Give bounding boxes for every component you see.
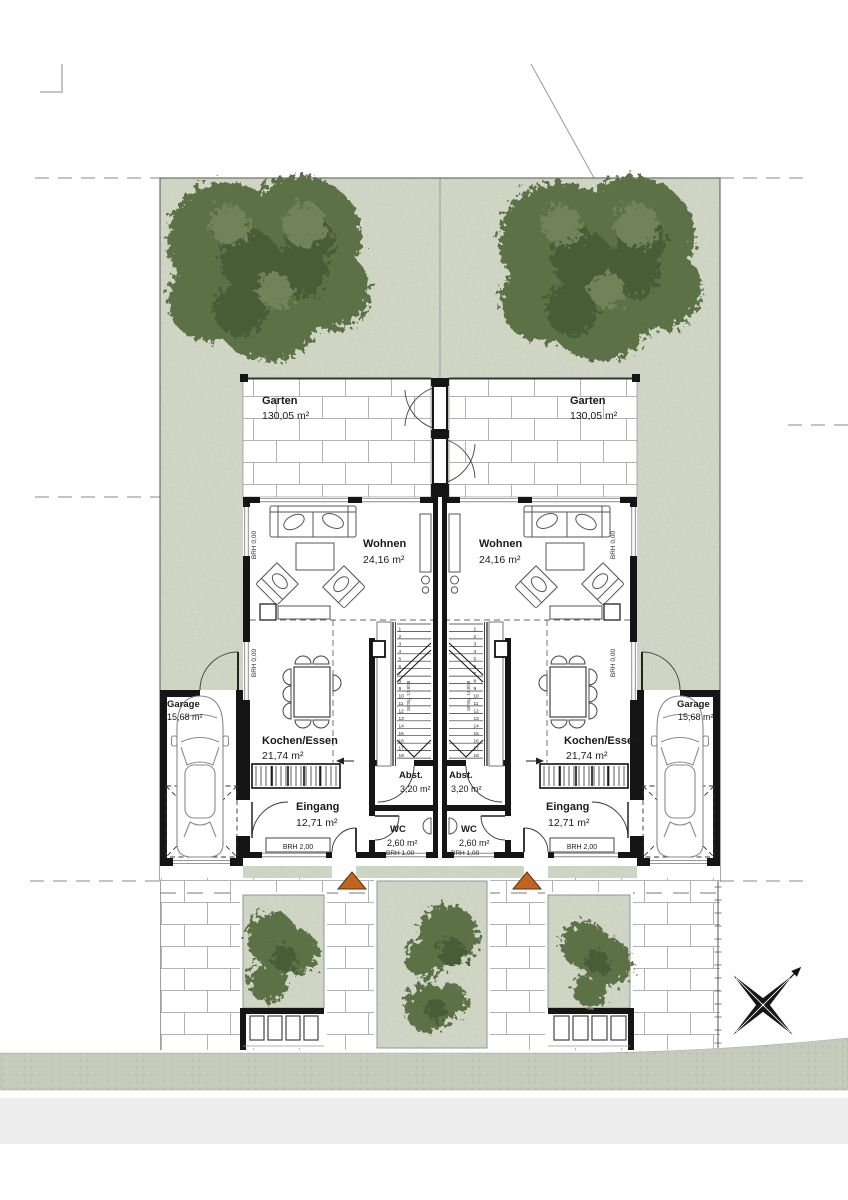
room-label-wc-right: WC bbox=[461, 824, 477, 835]
stair-step-number: 6 bbox=[474, 664, 477, 670]
stair-step-number: 8 bbox=[474, 679, 477, 685]
room-area-wc-left: 2,60 m² bbox=[387, 838, 418, 848]
brh-wc-window-right: BRH 1,00 bbox=[451, 850, 480, 857]
stair-step-number: 13 bbox=[474, 716, 480, 722]
road bbox=[0, 1098, 848, 1144]
room-label-wc-left: WC bbox=[390, 824, 406, 835]
brh-front-window-left: BRH 2,00 bbox=[283, 844, 313, 851]
room-label-eingang-left: Eingang bbox=[296, 801, 339, 813]
stair-step-number: 5 bbox=[399, 656, 402, 662]
stair-step-number: 10 bbox=[474, 694, 480, 700]
stair-step-number: 11 bbox=[399, 701, 404, 707]
room-area-eingang-right: 12,71 m² bbox=[548, 817, 590, 829]
stair-step-number: 15 bbox=[399, 731, 405, 737]
garden-right-label: Garten bbox=[570, 395, 606, 407]
room-label-garage-left: Garage bbox=[167, 699, 200, 710]
room-label-abst-left: Abst. bbox=[399, 770, 423, 781]
room-area-eingang-left: 12,71 m² bbox=[296, 817, 338, 829]
stair-step-number: 18 bbox=[474, 753, 480, 759]
room-area-wc-right: 2,60 m² bbox=[459, 838, 490, 848]
room-label-abst-right: Abst. bbox=[449, 770, 473, 781]
corner-mark bbox=[40, 64, 62, 92]
stair-step-number: 7 bbox=[399, 671, 402, 677]
room-area-wohnen-right: 24,16 m² bbox=[479, 554, 521, 566]
stair-step-number: 1 bbox=[474, 627, 477, 633]
stair-step-number: 4 bbox=[474, 649, 477, 655]
brh-window-right-kitchen: BRH 0,00 bbox=[610, 649, 617, 678]
stair-step-number: 3 bbox=[399, 641, 402, 647]
room-area-kochen-right: 21,74 m² bbox=[566, 750, 608, 762]
floor-plan-page: Garten 130,05 m² Garten 130,05 m² Wohnen… bbox=[0, 0, 848, 1200]
brh-window-right-living: BRH 0,00 bbox=[610, 531, 617, 560]
stair-note-left: 18 Stg. 17,8/28 bbox=[406, 680, 411, 711]
stair-step-number: 13 bbox=[399, 716, 405, 722]
brh-wc-window-left: BRH 1,00 bbox=[386, 850, 415, 857]
boundary-diagonal-line bbox=[531, 64, 594, 178]
front-lawn-strip-texture bbox=[243, 866, 637, 878]
room-area-abst-right: 3,20 m² bbox=[451, 784, 482, 794]
stair-step-number: 2 bbox=[399, 634, 402, 640]
stair-step-number: 14 bbox=[399, 723, 405, 729]
stair-step-number: 16 bbox=[399, 738, 405, 744]
brh-front-window-right: BRH 2,00 bbox=[567, 844, 597, 851]
stair-step-number: 12 bbox=[399, 708, 405, 714]
stair-step-number: 2 bbox=[474, 634, 477, 640]
north-compass bbox=[729, 964, 804, 1039]
stair-step-number: 17 bbox=[474, 746, 480, 752]
garden-left-label: Garten bbox=[262, 395, 298, 407]
stair-step-number: 5 bbox=[474, 656, 477, 662]
stair-step-number: 1 bbox=[399, 627, 402, 633]
garden-left-area: 130,05 m² bbox=[262, 410, 310, 422]
brh-window-left-living: BRH 0,00 bbox=[251, 531, 258, 560]
room-label-wohnen-left: Wohnen bbox=[363, 538, 406, 550]
stair-step-number: 15 bbox=[474, 731, 480, 737]
stair-step-number: 9 bbox=[399, 686, 402, 692]
stair-step-number: 7 bbox=[474, 671, 477, 677]
room-area-wohnen-left: 24,16 m² bbox=[363, 554, 405, 566]
stair-step-number: 14 bbox=[474, 723, 480, 729]
room-area-garage-right: 15,68 m² bbox=[678, 712, 714, 722]
room-label-kochen-left: Kochen/Essen bbox=[262, 735, 338, 747]
stair-note-right: 18 Stg. 17,8/28 bbox=[466, 680, 471, 711]
room-label-kochen-right: Kochen/Essen bbox=[564, 735, 640, 747]
stair-step-number: 9 bbox=[474, 686, 477, 692]
brh-window-left-kitchen: BRH 0,00 bbox=[251, 649, 258, 678]
stair-step-number: 8 bbox=[399, 679, 402, 685]
room-label-wohnen-right: Wohnen bbox=[479, 538, 522, 550]
stair-step-number: 16 bbox=[474, 738, 480, 744]
stair-step-number: 3 bbox=[474, 641, 477, 647]
stair-step-number: 4 bbox=[399, 649, 402, 655]
stair-step-number: 10 bbox=[399, 694, 405, 700]
room-area-abst-left: 3,20 m² bbox=[400, 784, 431, 794]
room-area-kochen-left: 21,74 m² bbox=[262, 750, 304, 762]
stair-step-number: 18 bbox=[399, 753, 405, 759]
room-area-garage-left: 15,68 m² bbox=[167, 712, 203, 722]
room-label-garage-right: Garage bbox=[677, 699, 710, 710]
stair-step-number: 6 bbox=[399, 664, 402, 670]
room-label-eingang-right: Eingang bbox=[546, 801, 589, 813]
party-wall-seam bbox=[438, 497, 442, 866]
garden-right-area: 130,05 m² bbox=[570, 410, 618, 422]
stair-step-number: 11 bbox=[474, 701, 479, 707]
stair-step-number: 12 bbox=[474, 708, 480, 714]
stair-step-number: 17 bbox=[399, 746, 405, 752]
floor-plan-drawing: Garten 130,05 m² Garten 130,05 m² Wohnen… bbox=[0, 0, 848, 1200]
